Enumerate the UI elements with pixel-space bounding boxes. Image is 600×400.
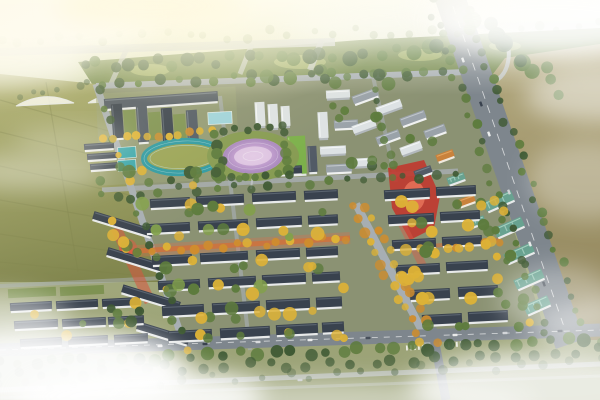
warm-light-tint <box>0 0 600 400</box>
aerial-development-rendering <box>0 0 600 400</box>
atmosphere <box>0 0 600 400</box>
scene-canvas <box>0 0 600 400</box>
